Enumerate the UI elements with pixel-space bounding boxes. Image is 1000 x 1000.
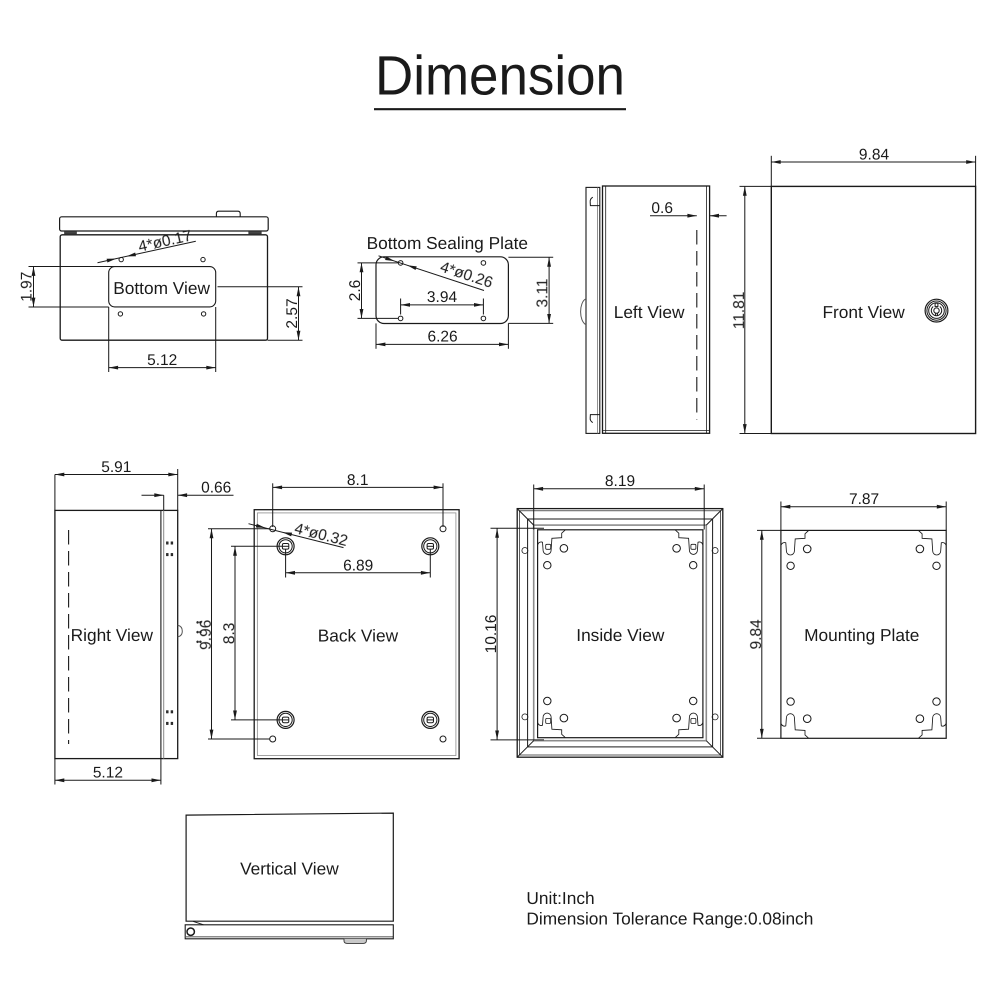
svg-text:Vertical View: Vertical View	[240, 858, 339, 878]
svg-text:Bottom Sealing Plate: Bottom Sealing Plate	[367, 233, 528, 253]
svg-text:1.97: 1.97	[19, 272, 36, 302]
svg-text:Right View: Right View	[71, 625, 154, 645]
svg-text:2.57: 2.57	[284, 298, 301, 328]
svg-text:8.1: 8.1	[347, 472, 369, 489]
svg-text:0.66: 0.66	[201, 480, 231, 497]
svg-text:0.6: 0.6	[651, 200, 673, 217]
svg-text:9.84: 9.84	[859, 146, 890, 163]
svg-text:5.12: 5.12	[147, 352, 177, 369]
svg-text:Dimension Tolerance Range:0.08: Dimension Tolerance Range:0.08inch	[526, 909, 813, 929]
svg-text:Inside View: Inside View	[576, 625, 665, 645]
svg-text:3.11: 3.11	[534, 278, 551, 307]
svg-text:5.91: 5.91	[101, 459, 131, 476]
svg-text:10.16: 10.16	[483, 615, 500, 654]
svg-text:Unit:Inch: Unit:Inch	[526, 888, 594, 908]
svg-text:Back View: Back View	[318, 625, 399, 645]
svg-text:Mounting Plate: Mounting Plate	[804, 625, 919, 645]
svg-text:8.3: 8.3	[221, 623, 238, 645]
svg-text:6.89: 6.89	[343, 557, 373, 574]
svg-text:9.96: 9.96	[198, 620, 215, 650]
svg-text:6.26: 6.26	[428, 329, 458, 346]
svg-text:11.81: 11.81	[731, 292, 748, 330]
svg-text:2.6: 2.6	[347, 280, 364, 302]
svg-text:9.84: 9.84	[748, 619, 765, 650]
svg-text:8.19: 8.19	[605, 473, 635, 490]
svg-text:4*ø0.26: 4*ø0.26	[438, 259, 495, 292]
svg-text:Dimension: Dimension	[375, 45, 625, 107]
svg-text:Left View: Left View	[614, 302, 685, 322]
svg-text:5.12: 5.12	[93, 765, 123, 782]
svg-text:7.87: 7.87	[849, 491, 879, 508]
svg-text:4*ø0.32: 4*ø0.32	[293, 520, 350, 550]
svg-text:3.94: 3.94	[427, 289, 458, 306]
svg-text:Front View: Front View	[822, 302, 905, 322]
svg-text:Bottom View: Bottom View	[113, 278, 210, 298]
